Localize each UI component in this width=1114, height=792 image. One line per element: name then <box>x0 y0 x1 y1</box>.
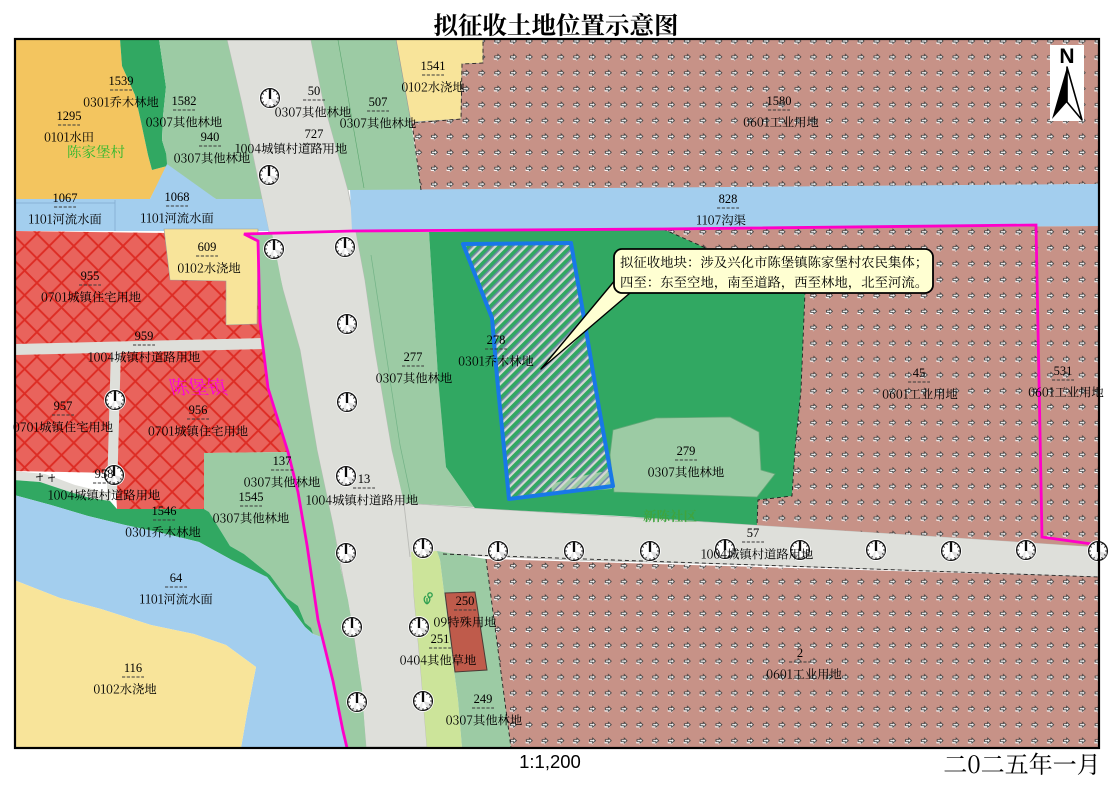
svg-text:N: N <box>1059 45 1074 68</box>
svg-text:957: 957 <box>54 399 73 413</box>
svg-text:50: 50 <box>308 84 321 98</box>
svg-text:13: 13 <box>358 472 371 486</box>
svg-text:959: 959 <box>135 329 154 343</box>
svg-text:251: 251 <box>431 632 450 646</box>
svg-text:1541: 1541 <box>421 59 446 73</box>
svg-text:1546: 1546 <box>152 504 177 518</box>
svg-text:609: 609 <box>198 240 217 254</box>
svg-text:64: 64 <box>170 571 183 585</box>
svg-text:507: 507 <box>369 95 388 109</box>
svg-text:956: 956 <box>189 403 208 417</box>
svg-text:279: 279 <box>677 444 696 458</box>
svg-text:249: 249 <box>474 692 493 706</box>
svg-text:116: 116 <box>124 661 142 675</box>
svg-text:1:1,200: 1:1,200 <box>519 751 581 772</box>
svg-text:955: 955 <box>81 269 100 283</box>
svg-text:727: 727 <box>305 127 324 141</box>
svg-text:277: 277 <box>404 350 423 364</box>
svg-text:137: 137 <box>273 454 292 468</box>
svg-text:1068: 1068 <box>165 190 190 204</box>
svg-text:1539: 1539 <box>109 74 134 88</box>
svg-text:958: 958 <box>95 467 114 481</box>
svg-text:1580: 1580 <box>767 94 792 108</box>
svg-text:2: 2 <box>797 646 803 660</box>
svg-text:1545: 1545 <box>239 490 264 504</box>
svg-text:45: 45 <box>913 366 926 380</box>
svg-text:57: 57 <box>747 526 760 540</box>
svg-text:1295: 1295 <box>57 109 82 123</box>
svg-text:828: 828 <box>719 192 738 206</box>
svg-text:1582: 1582 <box>172 94 197 108</box>
svg-text:250: 250 <box>456 594 475 608</box>
svg-text:531: 531 <box>1054 364 1073 378</box>
svg-text:1067: 1067 <box>53 191 78 205</box>
svg-text:940: 940 <box>201 130 220 144</box>
svg-text:278: 278 <box>487 333 506 347</box>
